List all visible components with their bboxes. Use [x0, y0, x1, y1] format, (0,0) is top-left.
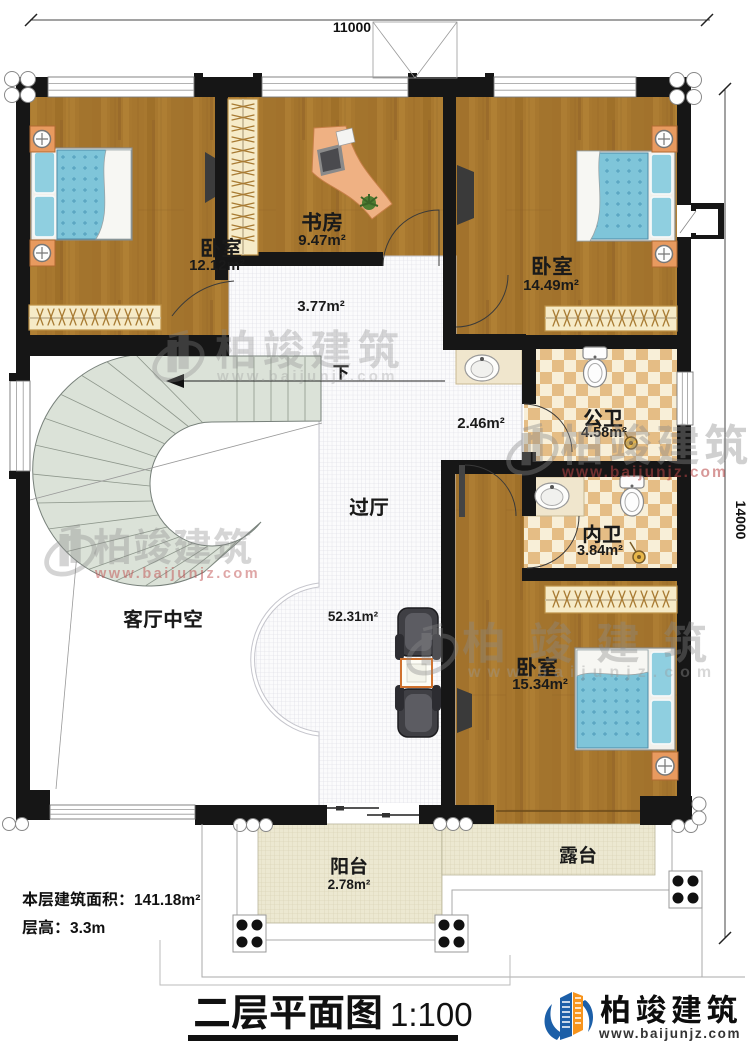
svg-text:www.baijunjz.com: www.baijunjz.com — [467, 664, 718, 681]
svg-text:14000: 14000 — [733, 501, 749, 540]
svg-text:2.46m²: 2.46m² — [457, 415, 505, 432]
svg-text:12.12m²: 12.12m² — [189, 257, 245, 274]
svg-text:14.49m²: 14.49m² — [523, 277, 579, 294]
svg-text:3.3m: 3.3m — [70, 920, 105, 937]
svg-text:1:100: 1:100 — [390, 996, 473, 1033]
svg-text:2.78m²: 2.78m² — [328, 877, 371, 892]
svg-text:11000: 11000 — [333, 19, 371, 35]
svg-text:www.baijunjz.com: www.baijunjz.com — [598, 1026, 741, 1041]
svg-text:9.47m²: 9.47m² — [298, 232, 346, 249]
svg-text:www.baijunjz.com: www.baijunjz.com — [216, 368, 398, 385]
svg-text:3.84m²: 3.84m² — [577, 543, 623, 559]
svg-text:www.baijunjz.com: www.baijunjz.com — [94, 566, 260, 582]
svg-text:3.77m²: 3.77m² — [297, 298, 345, 315]
svg-text:141.18m²: 141.18m² — [134, 892, 200, 909]
svg-text:52.31m²: 52.31m² — [328, 609, 379, 624]
svg-text:www.baijunjz.com: www.baijunjz.com — [561, 464, 728, 481]
